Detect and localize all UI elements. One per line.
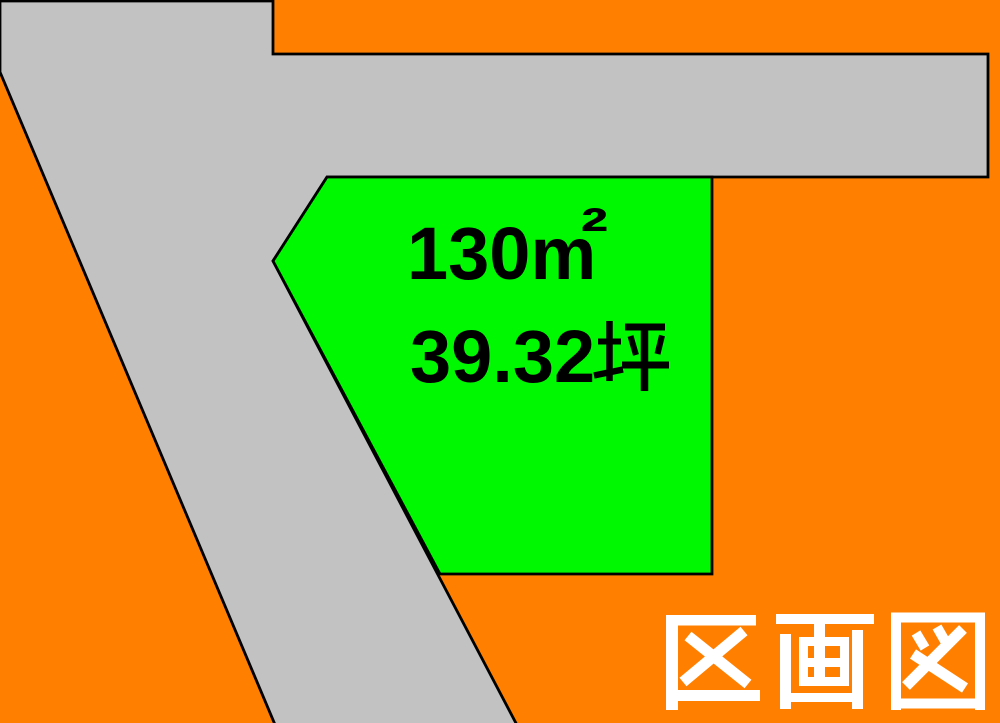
svg-text:130m: 130m	[407, 212, 596, 295]
svg-text:²: ²	[581, 195, 609, 267]
svg-text:39.32: 39.32	[410, 315, 595, 398]
